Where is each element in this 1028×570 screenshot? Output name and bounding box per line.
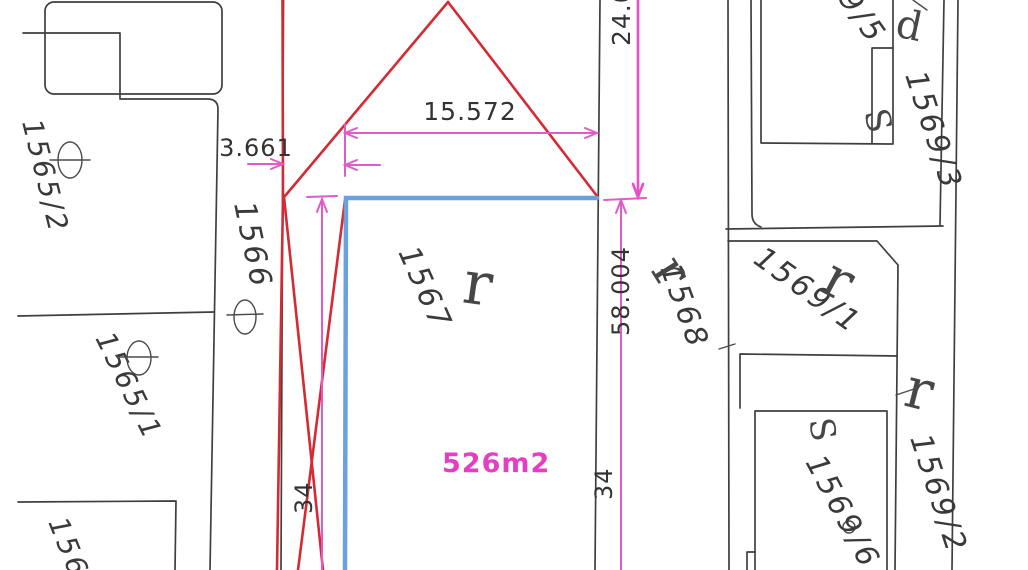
parcel-label-1567: 1567 — [391, 241, 459, 336]
survey-map-svg: 1565/2 1565/1 156 1566 1567 1568 1569/5 … — [0, 0, 1028, 570]
phi-symbol-1566 — [227, 300, 263, 334]
red-road-line-upper — [283, 0, 284, 196]
building-s-symbol-1569-1: S — [800, 415, 843, 445]
dim-text-34-left: 34 — [290, 481, 318, 514]
building-d-symbol: d — [892, 1, 927, 51]
dim-34-tick — [307, 196, 337, 197]
dim-text-58004: 58.004 — [607, 246, 635, 336]
dim-text-15572: 15.572 — [423, 97, 516, 126]
boundary-1565-lower — [18, 501, 176, 570]
parcel-label-1566: 1566 — [226, 198, 279, 292]
parcel-label-1569-6: 1569/6 — [798, 449, 887, 570]
dim-text-240: 24.0 — [607, 0, 636, 46]
parcel-label-1565-1: 1565/1 — [89, 327, 170, 446]
building-1569-1-notch — [747, 552, 755, 570]
building-topleft — [45, 2, 222, 94]
land-use-r-symbol-1569-2: r — [899, 356, 941, 426]
parcel-label-1569-5: 1569/5 — [793, 0, 893, 51]
fence-tick-1568 — [719, 344, 735, 349]
dim-text-34-right: 34 — [590, 467, 618, 500]
map-symbols: r r r r S S d — [50, 1, 941, 445]
area-label-526m2: 526m2 — [442, 448, 550, 479]
dim-text-3661: 3.661 — [219, 134, 293, 162]
boundary-1565-mid — [18, 312, 214, 316]
parcel-label-156-partial: 156 — [42, 512, 96, 570]
land-use-r-symbol-1567: r — [459, 248, 497, 321]
cadastral-map-canvas: 1565/2 1565/1 156 1566 1567 1568 1569/5 … — [0, 0, 1028, 570]
building-1569-1-upper — [740, 354, 897, 408]
boundary-1568-right — [728, 0, 729, 570]
dim-240-tick — [604, 198, 646, 200]
boundary-step-topleft — [23, 33, 218, 570]
boundary-1569-3-left — [751, 0, 761, 227]
parcel-label-1565-2: 1565/2 — [15, 116, 75, 237]
parcel-label-1569-2: 1569/2 — [902, 430, 973, 558]
parcel-label-1569-3: 1569/3 — [897, 67, 968, 195]
